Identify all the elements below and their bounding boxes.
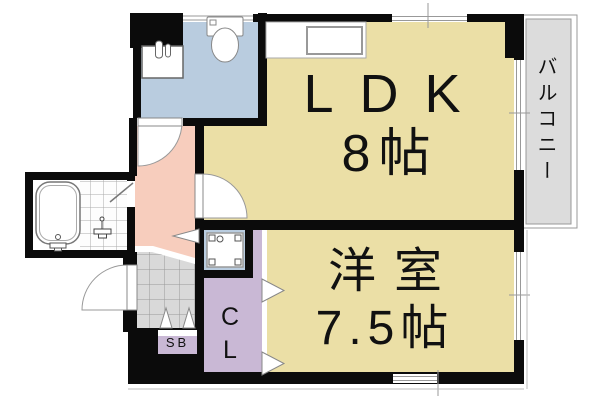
kitchen-counter-icon: [266, 22, 366, 58]
entrance-door-leaf: [127, 265, 137, 310]
wall-hall-left: [129, 118, 137, 176]
entrance-door-swing: [82, 265, 127, 310]
wall-fill-entry-left: [128, 328, 158, 372]
washing-machine-pan-icon: [207, 233, 243, 267]
window-western-bottom: [393, 374, 437, 383]
room-size-western: 7.5帖: [242, 303, 522, 356]
shower-tile-area: [80, 180, 127, 250]
room-label-ldk: LDK: [255, 66, 535, 123]
room-label-western: 洋室: [245, 247, 525, 297]
ldk-door-leaf: [195, 174, 203, 218]
room-label-balcony: バルコニー: [535, 56, 555, 186]
wall-fill-below-shoebox: [158, 354, 197, 372]
wall-bottom: [128, 372, 524, 384]
wall-entry-jamb-top: [123, 252, 137, 265]
washbasin-icon: [142, 41, 183, 78]
room-label-closet: CL: [217, 303, 242, 369]
bathtub-icon: [36, 182, 80, 251]
wall-washroom-left: [133, 45, 141, 120]
wall-ldk-western-divider: [195, 220, 524, 230]
washroom-door-leaf: [138, 118, 182, 126]
floorplan: LDK 8帖 洋室 7.5帖 バルコニー CL SB: [0, 0, 600, 400]
wall-hall-ldk-lower: [195, 218, 204, 230]
room-size-ldk: 8帖: [250, 126, 530, 183]
room-label-shoebox: SB: [158, 334, 197, 351]
wall-hall-ldk-upper: [195, 120, 204, 174]
